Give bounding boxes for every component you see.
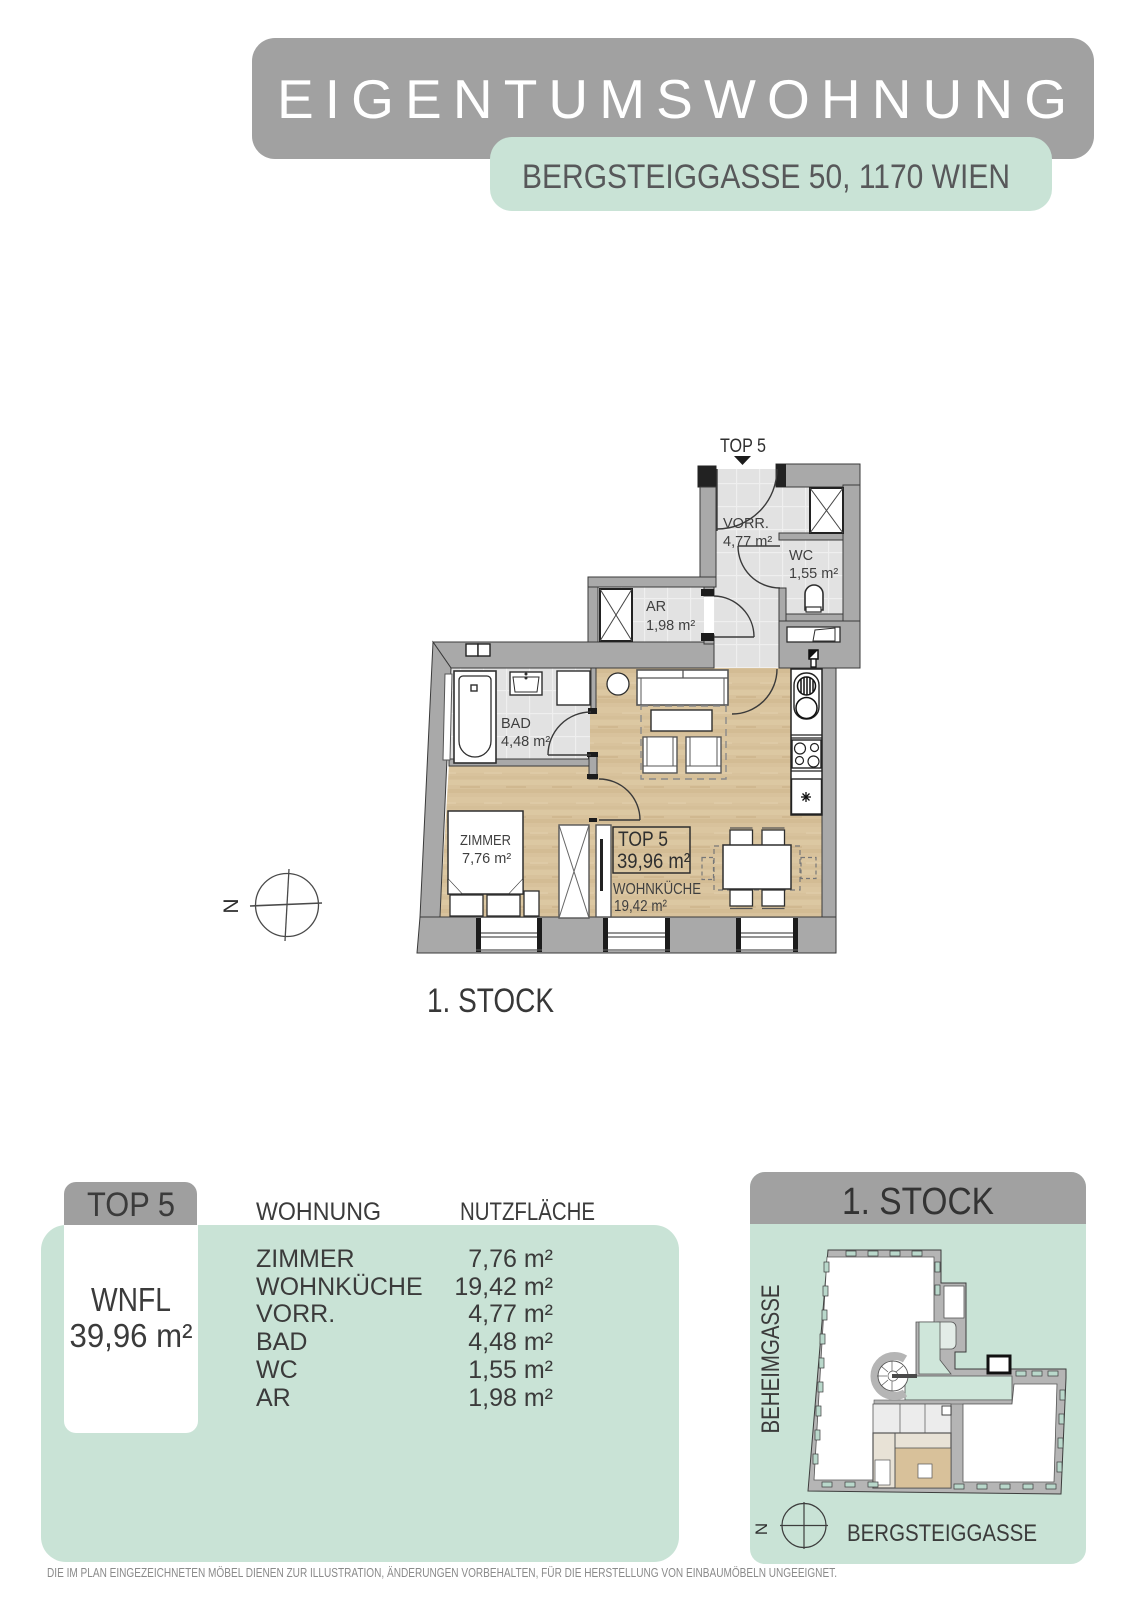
svg-text:AR: AR bbox=[646, 599, 666, 615]
svg-text:4,48 m²: 4,48 m² bbox=[501, 734, 550, 750]
svg-text:TOP 5: TOP 5 bbox=[720, 436, 766, 457]
svg-text:ZIMMER: ZIMMER bbox=[460, 833, 511, 849]
svg-text:1. STOCK: 1. STOCK bbox=[842, 1181, 994, 1223]
svg-text:39,96 m²: 39,96 m² bbox=[617, 850, 690, 873]
svg-text:39,96 m²: 39,96 m² bbox=[70, 1317, 193, 1354]
svg-text:1. STOCK: 1. STOCK bbox=[427, 982, 554, 1020]
svg-text:WOHNUNG: WOHNUNG bbox=[256, 1198, 381, 1226]
svg-text:1,55 m²: 1,55 m² bbox=[789, 566, 838, 582]
svg-text:19,42 m²: 19,42 m² bbox=[614, 898, 668, 915]
svg-text:TOP 5: TOP 5 bbox=[87, 1186, 175, 1224]
svg-text:WNFL: WNFL bbox=[91, 1281, 171, 1318]
svg-text:1,55 m²: 1,55 m² bbox=[468, 1356, 553, 1384]
svg-text:4,77 m²: 4,77 m² bbox=[723, 534, 772, 550]
svg-text:WC: WC bbox=[789, 548, 813, 564]
svg-text:TOP 5: TOP 5 bbox=[618, 828, 668, 851]
svg-text:AR: AR bbox=[256, 1384, 291, 1412]
svg-text:BERGSTEIGGASSE: BERGSTEIGGASSE bbox=[847, 1520, 1037, 1547]
svg-text:7,76 m²: 7,76 m² bbox=[468, 1245, 553, 1273]
svg-text:VORR.: VORR. bbox=[256, 1300, 335, 1328]
svg-text:N: N bbox=[752, 1523, 771, 1535]
svg-text:4,77 m²: 4,77 m² bbox=[468, 1300, 553, 1328]
svg-text:7,76 m²: 7,76 m² bbox=[462, 851, 511, 867]
svg-text:BAD: BAD bbox=[501, 716, 531, 732]
svg-text:ZIMMER: ZIMMER bbox=[256, 1245, 355, 1273]
svg-text:NUTZFLÄCHE: NUTZFLÄCHE bbox=[460, 1198, 595, 1226]
svg-text:BAD: BAD bbox=[256, 1328, 307, 1356]
svg-text:WOHNKÜCHE: WOHNKÜCHE bbox=[613, 880, 701, 898]
svg-text:19,42 m²: 19,42 m² bbox=[454, 1273, 553, 1301]
svg-text:VORR.: VORR. bbox=[723, 516, 769, 532]
svg-text:WOHNKÜCHE: WOHNKÜCHE bbox=[256, 1273, 423, 1301]
svg-text:1,98 m²: 1,98 m² bbox=[468, 1384, 553, 1412]
svg-text:1,98 m²: 1,98 m² bbox=[646, 618, 695, 634]
svg-text:N: N bbox=[220, 898, 243, 913]
svg-text:BERGSTEIGGASSE 50, 1170 WIEN: BERGSTEIGGASSE 50, 1170 WIEN bbox=[522, 158, 1010, 196]
svg-text:4,48 m²: 4,48 m² bbox=[468, 1328, 553, 1356]
svg-text:WC: WC bbox=[256, 1356, 298, 1384]
svg-text:BEHEIMGASSE: BEHEIMGASSE bbox=[757, 1285, 785, 1434]
svg-text:DIE IM PLAN EINGEZEICHNETEN MÖ: DIE IM PLAN EINGEZEICHNETEN MÖBEL DIENEN… bbox=[47, 1565, 837, 1580]
